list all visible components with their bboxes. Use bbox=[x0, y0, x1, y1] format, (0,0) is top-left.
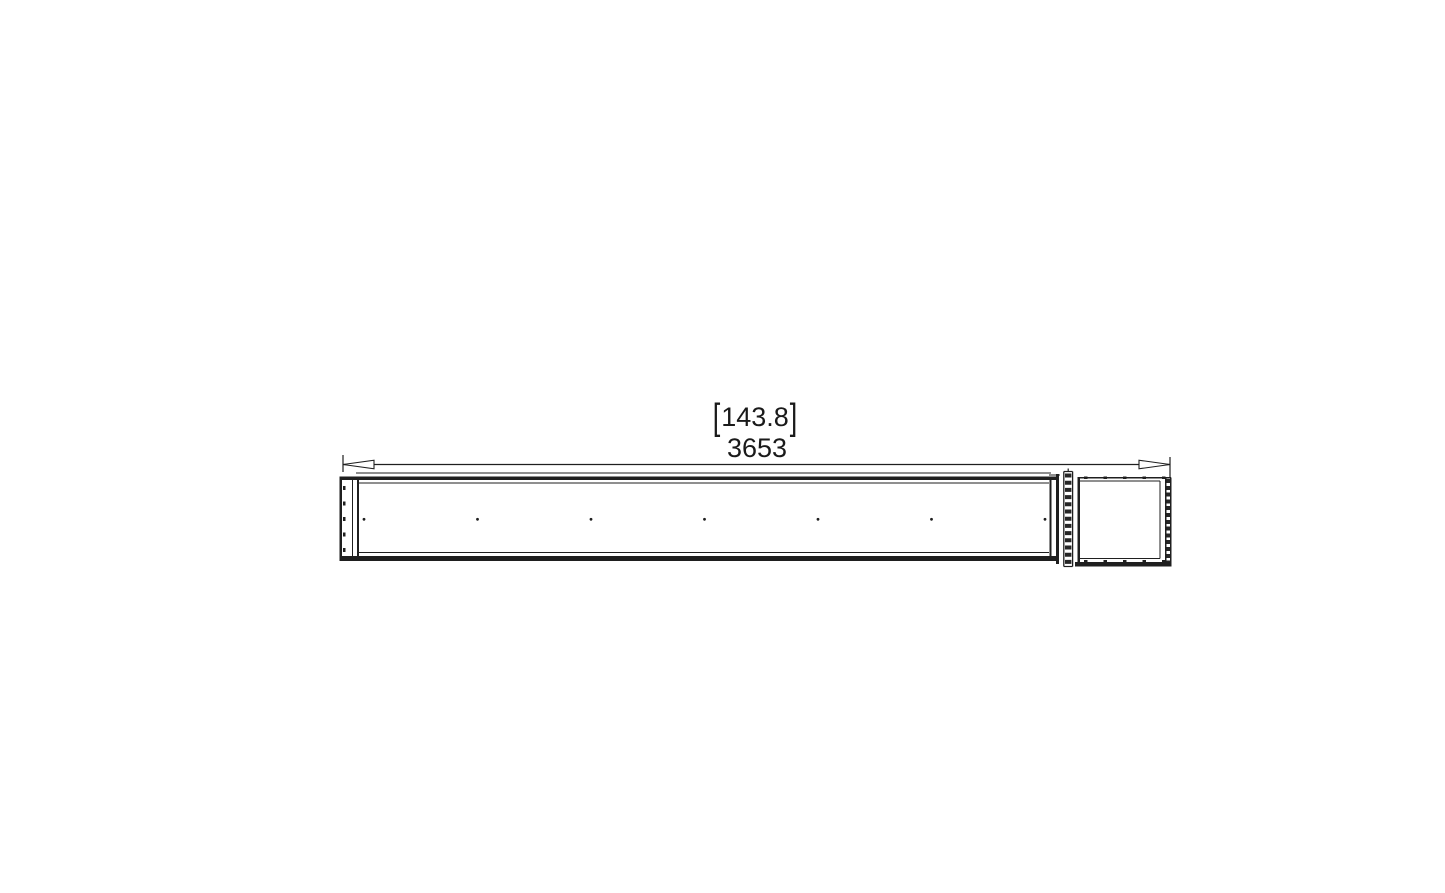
arrowhead-left bbox=[343, 460, 374, 469]
main-bottom-flange bbox=[340, 556, 1060, 561]
arrowhead-right bbox=[1139, 460, 1170, 469]
main-top-flange bbox=[340, 476, 1060, 480]
drawing-canvas: [143.8] 3653 bbox=[0, 0, 1445, 893]
burner-port-dot bbox=[590, 518, 593, 521]
burner-port-dot bbox=[930, 518, 933, 521]
right-box-bottom-flange bbox=[1075, 562, 1171, 567]
right-end-wall bbox=[1056, 474, 1059, 564]
connector-strip bbox=[1064, 469, 1073, 567]
main-burner-body bbox=[340, 473, 1061, 564]
burner-port-dot bbox=[363, 518, 366, 521]
right-box-left-wall bbox=[1078, 478, 1080, 566]
burner-plan-drawing bbox=[0, 0, 1445, 893]
left-end-wall bbox=[340, 476, 343, 561]
burner-port-dot bbox=[703, 518, 706, 521]
dimension-line-assembly bbox=[343, 455, 1170, 478]
burner-port-dot bbox=[1044, 518, 1047, 521]
burner-ports bbox=[363, 518, 1047, 521]
burner-port-dot bbox=[476, 518, 479, 521]
burner-port-dot bbox=[817, 518, 820, 521]
right-end-box bbox=[1075, 478, 1171, 567]
